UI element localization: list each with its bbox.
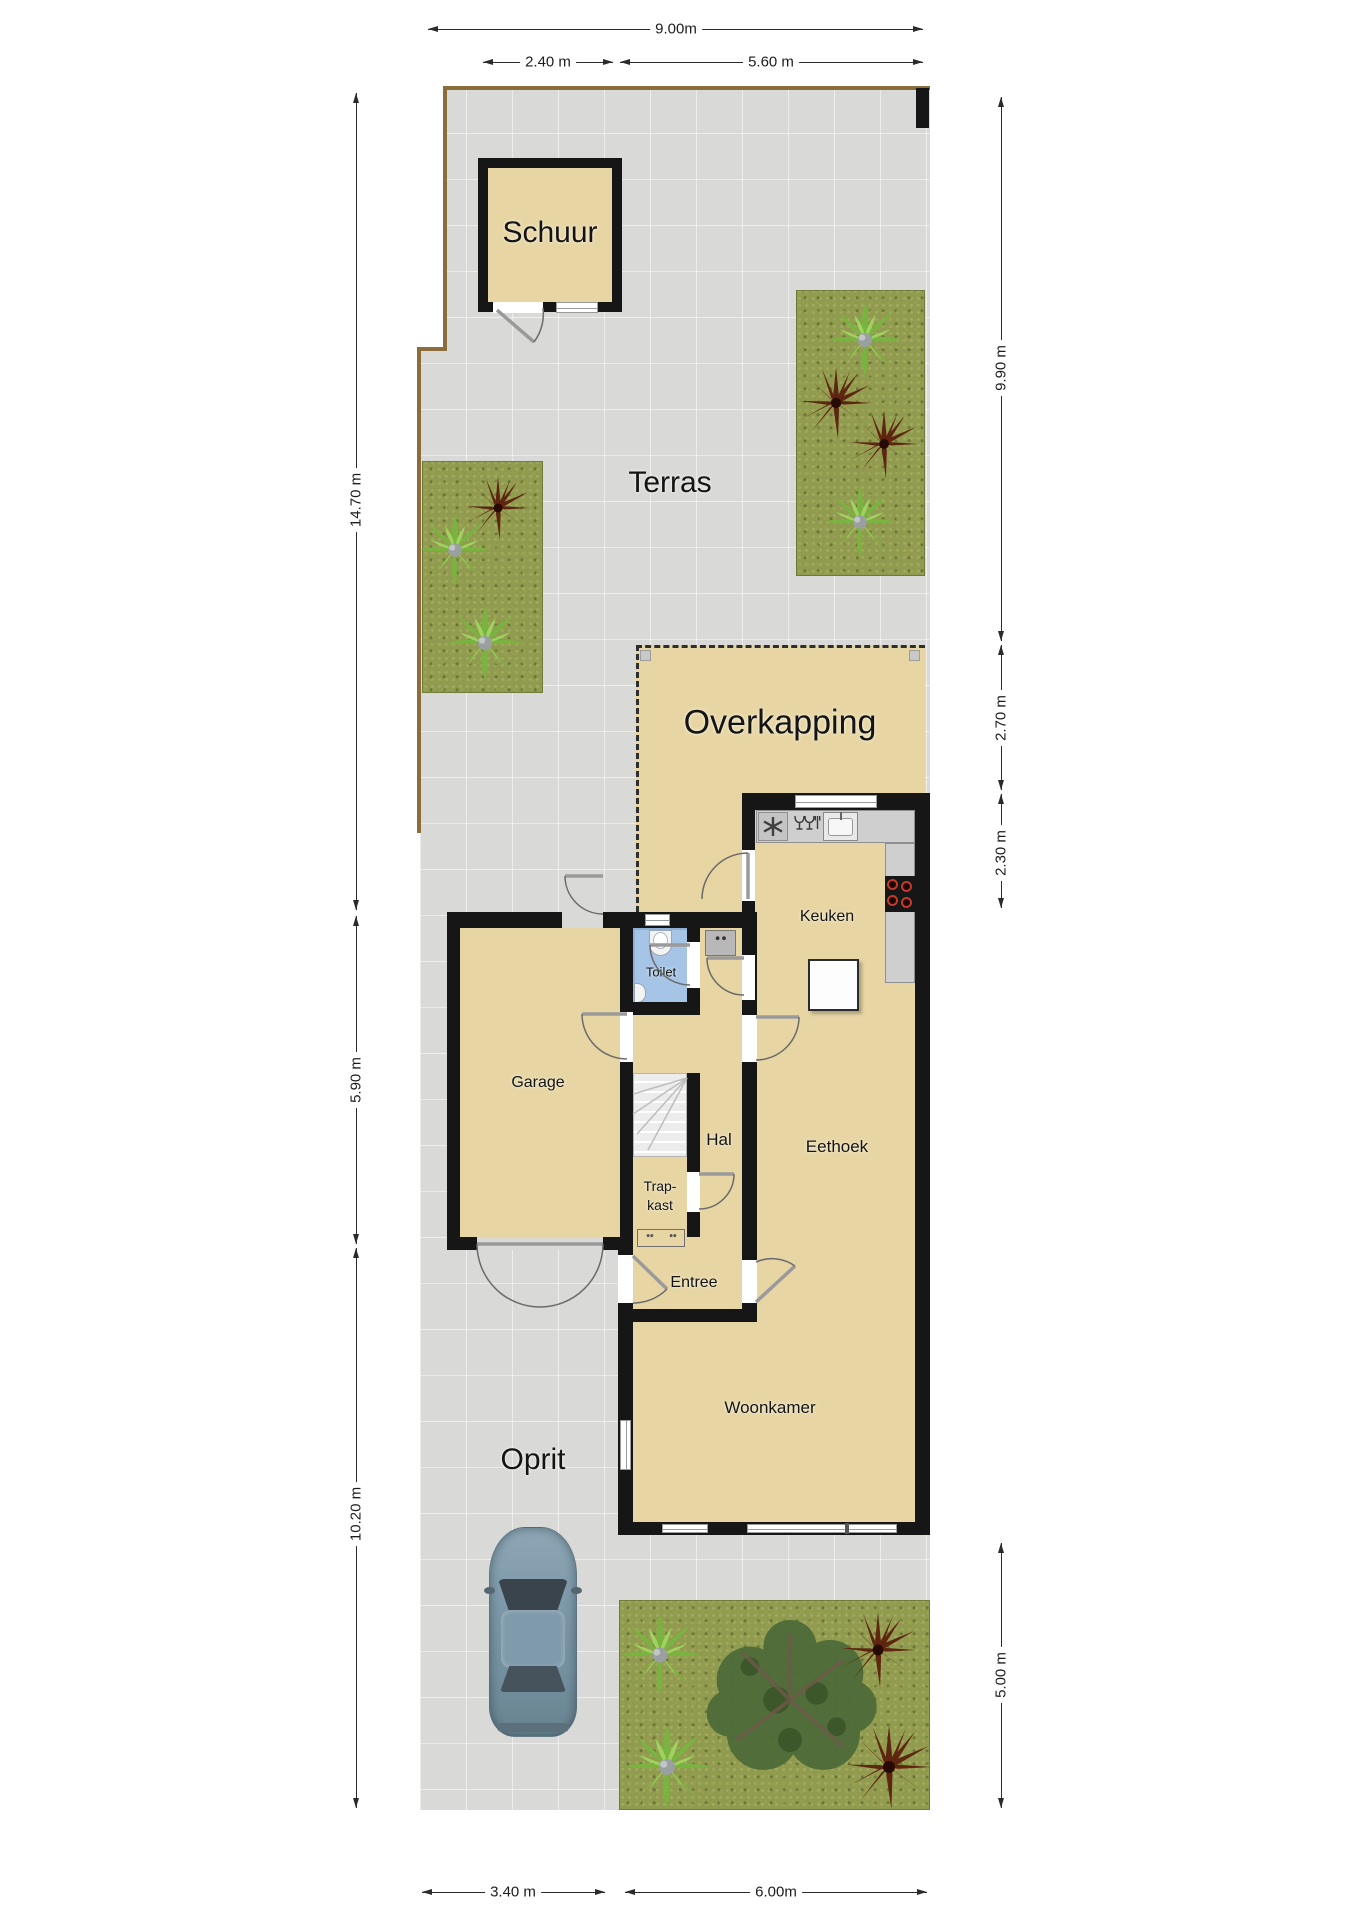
dim-label-left-upper: 14.70 m <box>348 468 365 532</box>
dim-label-right-tuin: 5.00 m <box>993 1647 1010 1703</box>
car <box>489 1527 577 1737</box>
oprit-label: Oprit <box>500 1443 565 1477</box>
schuur-label: Schuur <box>502 216 597 250</box>
dim-label-right-terras: 9.90 m <box>993 340 1010 396</box>
kitchen-sink <box>823 812 858 841</box>
car-rear-window <box>500 1666 566 1692</box>
keuken-label: Keuken <box>800 908 854 926</box>
boundary-left-lower <box>417 350 421 833</box>
grass-back-garden <box>619 1600 930 1810</box>
dim-label-right-overkapping: 2.70 m <box>993 690 1010 746</box>
car-bumper <box>497 1723 569 1732</box>
trapkast-label: Trap- kast <box>644 1177 677 1215</box>
canopy-post-right <box>909 650 920 661</box>
staircase <box>633 1073 687 1157</box>
schuur-door-opening <box>493 302 543 313</box>
burner-icon <box>901 881 912 892</box>
wall-entree-south <box>633 1309 757 1322</box>
sink-faucet-icon <box>840 812 842 820</box>
garage-door-opening <box>477 1237 603 1250</box>
car-windshield <box>498 1579 568 1612</box>
entree-eethoek-door-opening <box>742 1260 757 1303</box>
dim-label-bottom-tuin: 6.00m <box>750 1884 802 1901</box>
cooktop <box>885 876 915 912</box>
car-mirror-right <box>571 1587 582 1594</box>
boundary-top <box>446 86 930 90</box>
toilet-bowl-inner <box>653 932 668 949</box>
dining-table <box>808 959 859 1011</box>
woonkamer-west-window <box>620 1420 631 1470</box>
toilet-door-opening <box>687 942 700 988</box>
burner-icon <box>887 879 898 890</box>
garage-terras-door-opening <box>562 912 603 928</box>
woonkamer-south-window-small <box>662 1524 708 1533</box>
terras-label: Terras <box>628 466 711 500</box>
car-roof <box>501 1610 565 1668</box>
dim-label-top-total: 9.00m <box>650 21 702 38</box>
toilet-window <box>645 914 670 926</box>
overkapping-dashed-left <box>636 645 639 912</box>
overkapping-side-strip <box>636 793 742 912</box>
woonkamer-label: Woonkamer <box>724 1398 815 1418</box>
dim-label-left-garage: 5.90 m <box>348 1052 365 1108</box>
kitchen-window <box>795 795 877 808</box>
dim-label-left-lower: 10.20 m <box>348 1482 365 1546</box>
keuken-nook-door-opening <box>742 955 755 1000</box>
dim-label-top-schuur: 2.40 m <box>520 54 576 71</box>
garage-hal-door-opening <box>620 1012 633 1062</box>
floor-plan: Schuur Terras Overkapping Keuken Toilet … <box>0 0 1358 1920</box>
window-mullion <box>845 1523 849 1534</box>
overkapping-door-opening <box>742 850 755 901</box>
wall-east <box>915 793 930 1535</box>
kitchen-counter-right <box>885 843 915 983</box>
dim-label-top-right: 5.60 m <box>743 54 799 71</box>
trapkast-door-opening <box>687 1172 700 1212</box>
canopy-post-left <box>640 650 651 661</box>
washbasin-cabinet <box>705 930 736 956</box>
entree-sideboard <box>637 1229 685 1247</box>
dim-label-bottom-oprit: 3.40 m <box>485 1884 541 1901</box>
extractor-fan-icon <box>758 812 788 841</box>
toilet-label: Toilet <box>646 965 676 980</box>
grass-right <box>796 290 925 576</box>
hal-eethoek-door-opening <box>742 1015 757 1062</box>
eethoek-label: Eethoek <box>806 1137 868 1157</box>
car-mirror-left <box>484 1587 495 1594</box>
boundary-step <box>417 347 447 351</box>
overkapping-label: Overkapping <box>684 704 877 743</box>
front-door-opening <box>618 1255 633 1303</box>
burner-icon <box>901 897 912 908</box>
garage-label: Garage <box>511 1074 564 1092</box>
corner-post <box>916 88 929 128</box>
burner-icon <box>887 895 898 906</box>
woonkamer-south-window-large <box>747 1524 897 1533</box>
wall-garage-west <box>447 916 460 1250</box>
hal-label: Hal <box>706 1130 732 1150</box>
grass-left <box>422 461 543 693</box>
sink-basin <box>828 818 853 836</box>
dim-label-right-keuken: 2.30 m <box>993 825 1010 881</box>
schuur-window <box>556 302 598 313</box>
wall-stairs-east <box>687 1073 700 1157</box>
boundary-left-upper <box>443 86 447 350</box>
overkapping-dashed-top <box>636 645 925 648</box>
wall-garage-east <box>620 916 633 1250</box>
entree-label: Entree <box>670 1274 717 1292</box>
